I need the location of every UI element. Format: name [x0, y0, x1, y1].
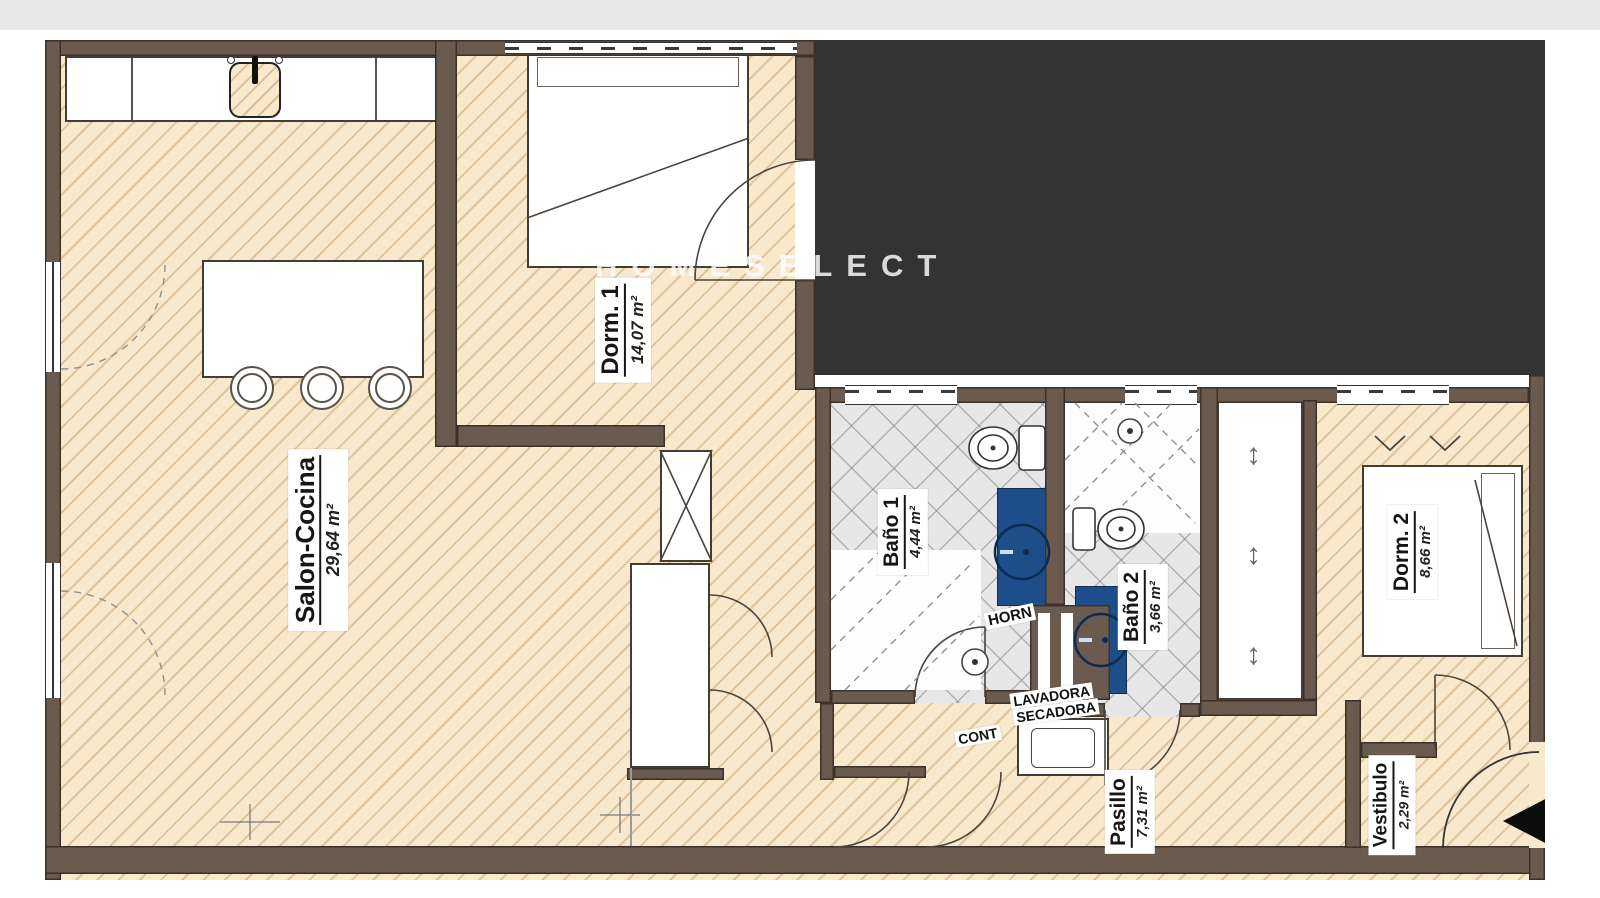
wardrobe-arrow-icon: ↕ — [1246, 640, 1261, 670]
room-label-bano2: Baño 2 3,66 m² — [1118, 564, 1168, 650]
room-name: Baño 1 — [881, 495, 906, 569]
cross-mark — [220, 804, 280, 840]
room-name: Dorm. 1 — [598, 283, 626, 376]
sink-dot — [1102, 637, 1108, 643]
sink-dot — [1023, 549, 1029, 555]
room-name: Baño 2 — [1121, 570, 1146, 644]
door-arc-hall — [834, 772, 909, 847]
wardrobe-arrow-icon: ↕ — [1246, 540, 1261, 570]
room-area: 14,07 m² — [626, 296, 648, 364]
room-name: Vestibulo — [1371, 761, 1394, 849]
closet-door-arc — [710, 595, 772, 657]
top-gray-strip — [0, 0, 1600, 30]
apartment-floor-plan: ↕ ↕ ↕ — [45, 40, 1545, 880]
room-name: Dorm. 2 — [1391, 511, 1416, 593]
toilet-tank — [1073, 508, 1095, 550]
closet-door-arc — [710, 690, 772, 752]
room-area: 2,29 m² — [1394, 781, 1413, 829]
toilet-tank — [1019, 426, 1045, 470]
room-area: 29,64 m² — [321, 504, 345, 576]
cross-mark — [600, 797, 640, 833]
room-label-pasillo: Pasillo 7,31 m² — [1105, 770, 1155, 854]
toilet-flush-dot — [1119, 527, 1124, 532]
door-arc-hall — [926, 772, 1001, 847]
shaft-x-brace — [660, 450, 712, 562]
room-area: 4,44 m² — [905, 506, 925, 558]
room-name: Salon-Cocina — [291, 455, 321, 625]
room-label-dorm2: Dorm. 2 8,66 m² — [1388, 505, 1438, 599]
balcony-door-arc — [61, 265, 165, 369]
room-area: 8,66 m² — [1415, 526, 1435, 578]
wardrobe-arrow-icon: ↕ — [1246, 440, 1261, 470]
floor-plan-screenshot: ↕ ↕ ↕ — [0, 0, 1600, 898]
room-label-dorm1: Dorm. 1 14,07 m² — [595, 277, 651, 382]
entrance-door-arc — [1443, 752, 1539, 848]
balcony-door-arc — [61, 591, 165, 695]
entrance-arrow-icon — [1503, 795, 1545, 847]
bed1-fold-line — [527, 138, 749, 218]
room-area: 3,66 m² — [1145, 581, 1165, 633]
shower-drain-dot — [1127, 428, 1133, 434]
toilet-flush-dot — [991, 446, 996, 451]
door-arc-dorm2 — [1435, 675, 1510, 750]
ceiling-slope-marks — [1375, 436, 1460, 450]
shower-drain-dot — [972, 659, 978, 665]
room-label-vestibulo: Vestibulo 2,29 m² — [1368, 755, 1415, 855]
room-label-bano1: Baño 1 4,44 m² — [878, 489, 928, 575]
room-label-salon-cocina: Salon-Cocina 29,64 m² — [288, 449, 348, 631]
room-area: 7,31 m² — [1132, 786, 1152, 838]
bed2-fold-line — [1475, 480, 1517, 646]
homeselect-watermark: HOMESELECT — [595, 248, 950, 284]
room-name: Pasillo — [1108, 776, 1133, 848]
plan-vector-details — [45, 40, 1545, 880]
